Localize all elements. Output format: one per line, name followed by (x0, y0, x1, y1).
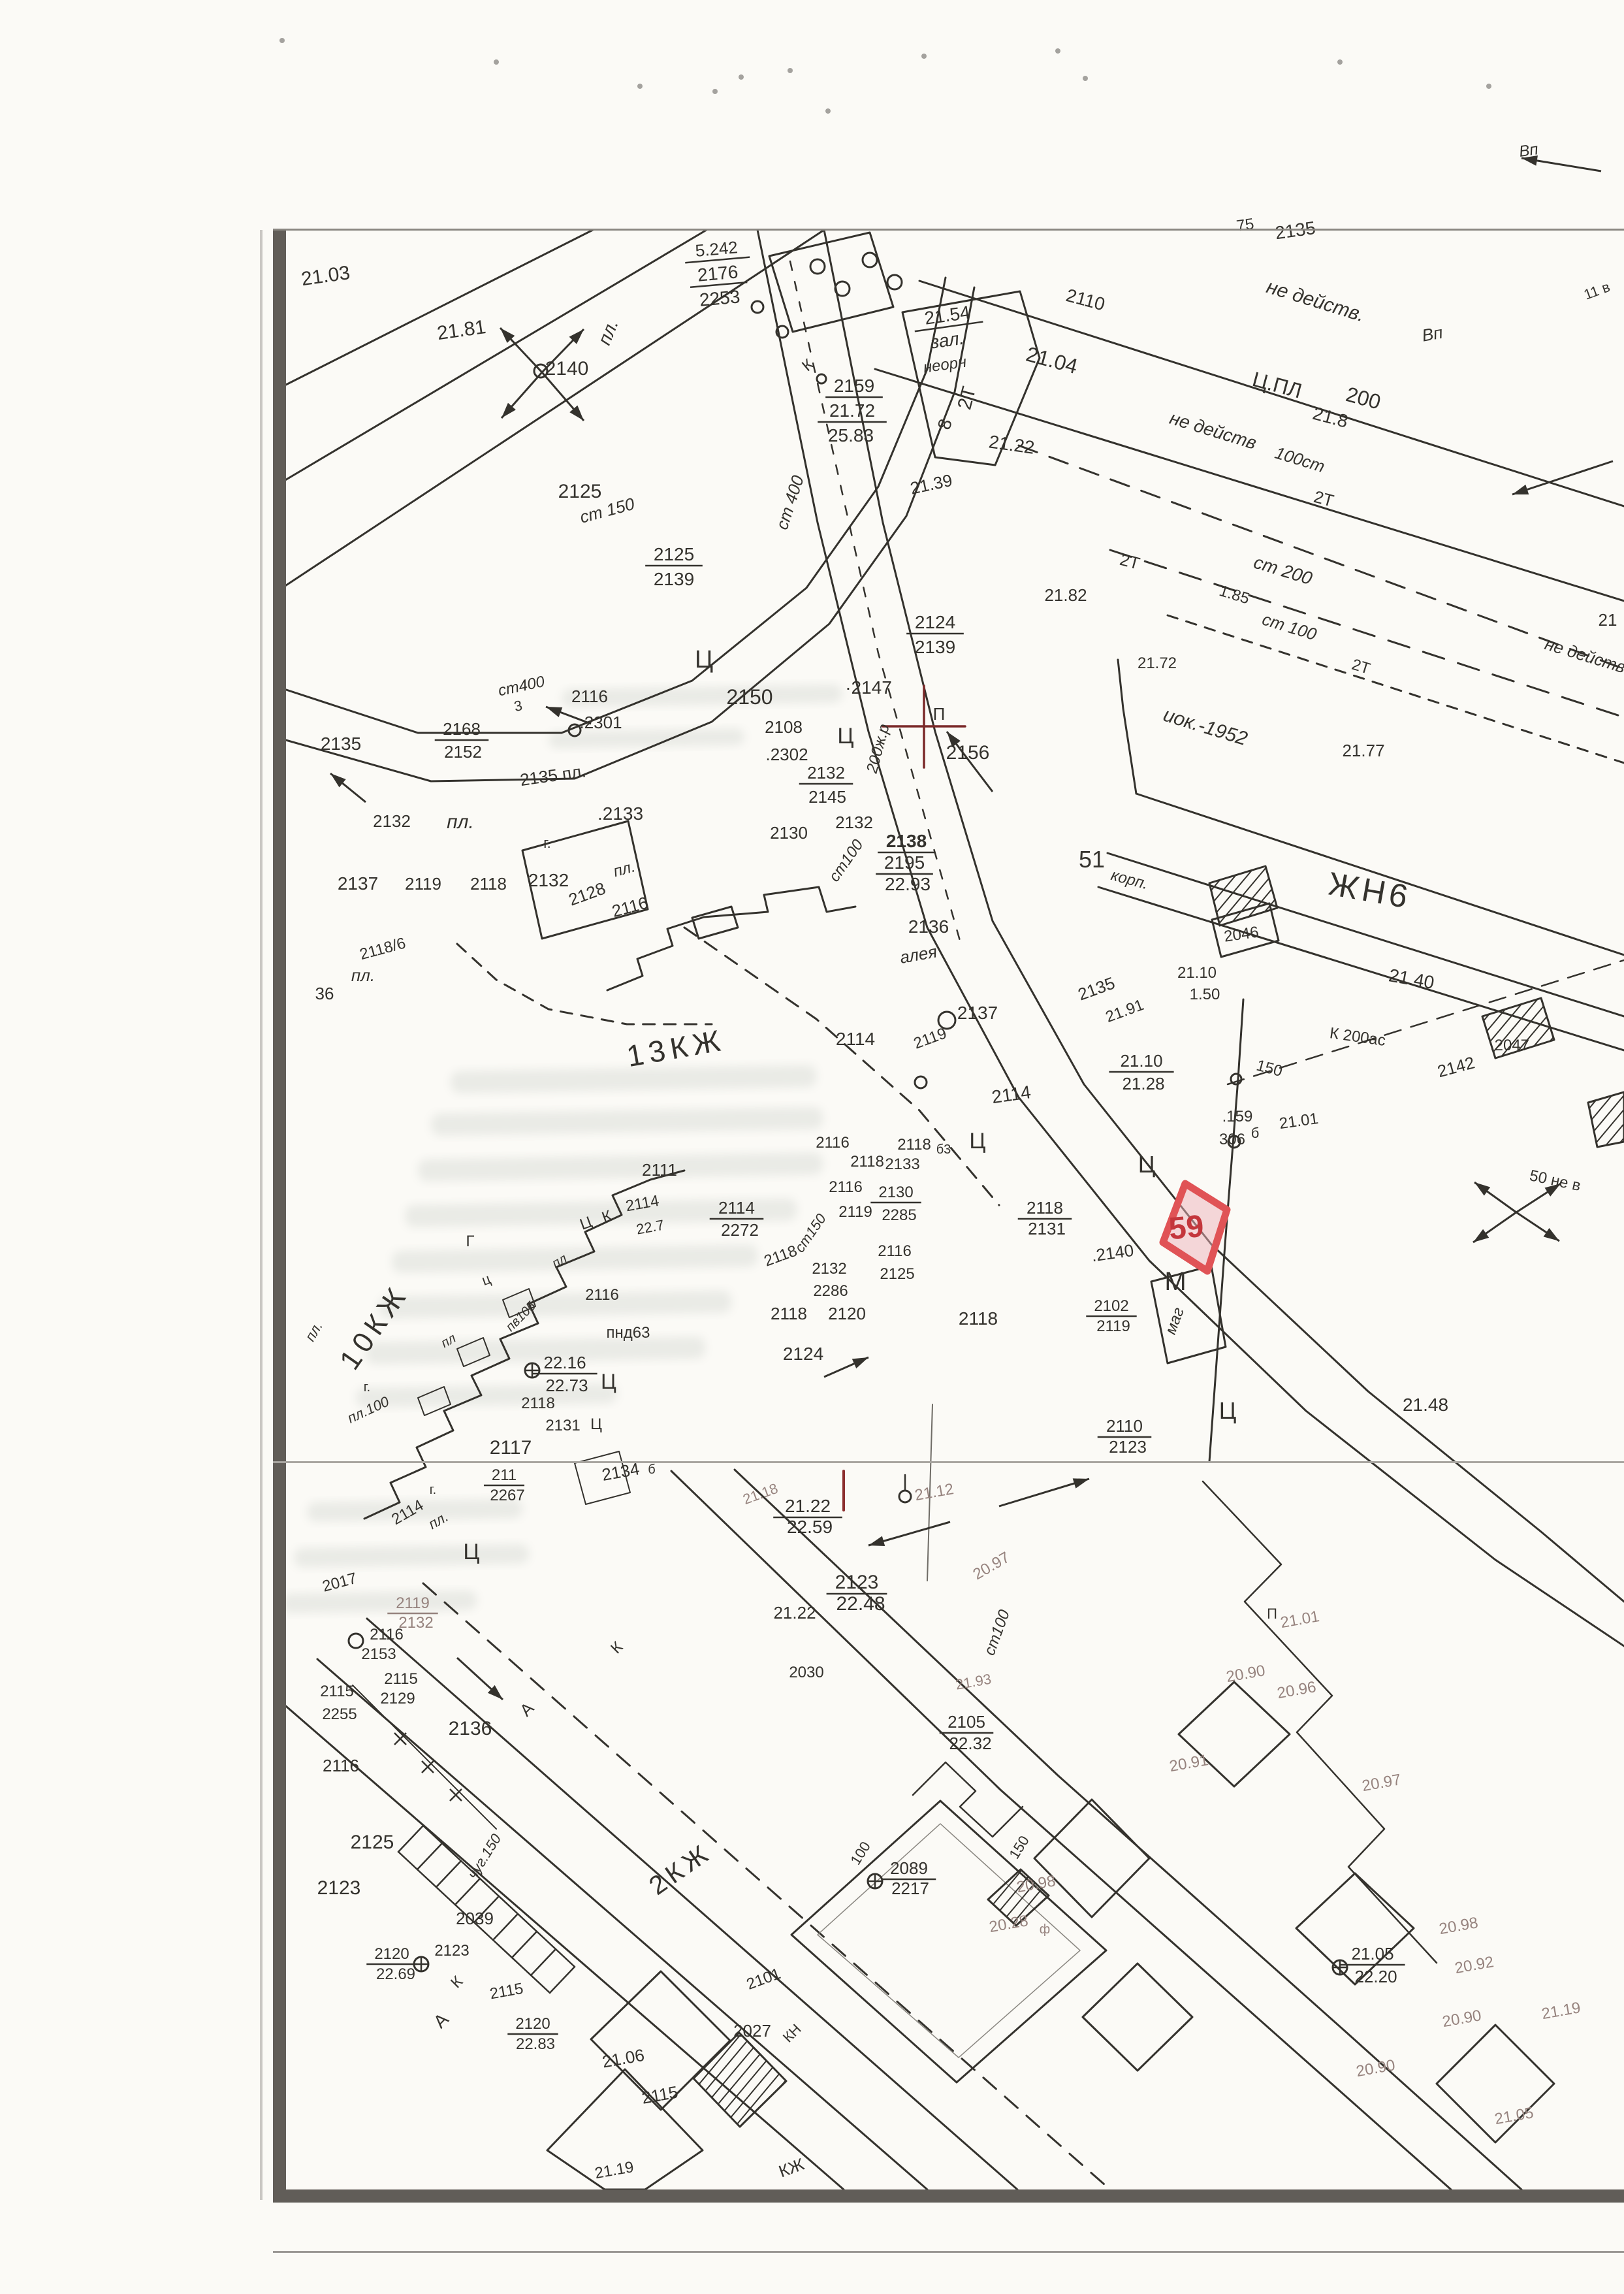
map-label: пл. (351, 965, 375, 985)
map-label: 2119 (396, 1594, 430, 1612)
map-label: 2253 (699, 286, 741, 310)
map-label-group: 2136 (449, 1718, 492, 1739)
map-label: 2123 (434, 1942, 469, 1960)
map-label-group: 2153 (361, 1645, 396, 1663)
scan-speck (788, 68, 793, 73)
map-label: 21.82 (1044, 585, 1087, 605)
map-label: 2176 (697, 261, 739, 285)
map-label-group: Ц (837, 724, 853, 749)
map-label-group: 2285 (882, 1206, 916, 1224)
map-label-group: 22.73 (545, 1376, 588, 1395)
map-label-group: 2116 (571, 687, 608, 706)
map-label-group: ф (1040, 1922, 1050, 1937)
map-label: 22.69 (376, 1965, 415, 1983)
map-label-group: 2111 (642, 1160, 677, 1180)
map-label: 21.10 (1177, 964, 1217, 982)
map-label-group: Ц (463, 1540, 479, 1564)
map-label: 2116 (585, 1286, 619, 1304)
map-label-group: 25.83 (828, 425, 874, 445)
map-label: Ц (463, 1540, 479, 1564)
map-label: б (648, 1462, 655, 1477)
map-label-group: М (1164, 1267, 1186, 1296)
map-label-group: 2159 (825, 376, 883, 397)
map-label-group: 21.10 (1177, 964, 1217, 982)
map-label: 22.16 (543, 1353, 586, 1372)
bleed-through-smudge (281, 1591, 477, 1613)
map-label: 21.48 (1403, 1395, 1448, 1415)
map-label-group: 2132 (373, 811, 411, 831)
map-label-group: 2108 (765, 717, 803, 737)
map-label-group: 51 (1079, 846, 1105, 873)
map-label-group: 2119 (838, 1203, 872, 1221)
parcel-59-label-group: 59 (1168, 1209, 1205, 1246)
map-label: 2089 (890, 1858, 928, 1878)
map-label: 2114 (836, 1029, 875, 1049)
map-label-group: 2195 (876, 852, 933, 874)
map-label-group: 2132 (528, 870, 569, 890)
map-label: 5.242 (694, 237, 738, 261)
scan-speck (494, 59, 499, 65)
map-label-group: 2115 (320, 1683, 354, 1700)
map-label-group: 2145 (808, 787, 846, 807)
map-label-group: 2120 (828, 1304, 866, 1323)
scan-speck (825, 108, 831, 114)
map-label: 22.48 (836, 1593, 885, 1615)
map-label: 2125 (654, 544, 694, 564)
scanned-map-page: 21.0321.81пл.214021255.2422176225321.54з… (0, 0, 1624, 2294)
map-label-group: 2150 (726, 685, 772, 709)
map-label-group: 2124 (906, 612, 964, 634)
map-label-group: 2132 (812, 1260, 846, 1278)
map-label-group: .159 (1222, 1108, 1253, 1125)
map-label: П (933, 704, 946, 724)
map-label-group: 2118 (959, 1308, 998, 1329)
map-label: 2125 (880, 1265, 914, 1283)
map-label: 2116 (323, 1756, 359, 1775)
map-label: ·2147 (845, 677, 892, 698)
map-label-group: 2267 (490, 1487, 524, 1504)
map-label-group: 2125 (558, 481, 602, 502)
map-label-group: 2130 (770, 823, 808, 843)
map-label-group: 2135 (321, 734, 361, 754)
map-label-group: 22.93 (885, 874, 931, 894)
map-label-group: .2301 (579, 713, 622, 732)
map-label-group: 2116 (829, 1178, 863, 1196)
scan-speck (279, 38, 285, 43)
map-label-group: Вп (1518, 140, 1540, 161)
map-label-group: .2302 (765, 745, 808, 764)
map-label-group: пл. (351, 965, 375, 985)
map-label: 2133 (885, 1155, 919, 1173)
map-label: 22.73 (545, 1376, 588, 1395)
map-label-group: П (933, 704, 946, 724)
map-frame-border-0 (260, 230, 263, 2200)
map-label-group: 22.59 (787, 1517, 833, 1537)
map-label: 2118 (771, 1304, 807, 1323)
map-label: 2120 (828, 1304, 866, 1323)
map-label-group: 21.72 (1138, 654, 1177, 672)
map-label: 2153 (361, 1645, 396, 1663)
map-label-group: 21.48 (1403, 1395, 1448, 1415)
map-label: г. (543, 835, 550, 851)
map-label: 2131 (545, 1417, 580, 1434)
map-label: 2123 (1109, 1437, 1147, 1457)
map-label: б3 (936, 1142, 951, 1157)
map-label: .2302 (765, 745, 808, 764)
map-label: 22.83 (516, 2035, 555, 2053)
map-label: 2137 (338, 873, 378, 894)
map-label: 21.77 (1342, 741, 1384, 760)
map-label: 2116 (816, 1134, 850, 1152)
map-label: .2301 (579, 713, 622, 732)
map-label-group: г. (543, 835, 550, 851)
map-label: 2030 (789, 1664, 823, 1681)
map-label: 2118 (521, 1395, 555, 1412)
map-label: 2132 (807, 763, 845, 783)
map-label: 2267 (490, 1487, 524, 1504)
map-label-group: 21 (1599, 610, 1617, 630)
map-label-group: 1.50 (1190, 986, 1220, 1003)
map-label: 2286 (813, 1282, 848, 1300)
map-label-group: 21.22 (773, 1603, 816, 1623)
map-label-group: Ц (1219, 1397, 1237, 1424)
scan-speck (1083, 76, 1088, 81)
map-label-group: 2116 (370, 1626, 404, 1643)
map-label-group: П (1267, 1606, 1277, 1622)
map-label: 75 (1235, 215, 1255, 234)
map-label-group: 2255 (322, 1705, 357, 1723)
map-label-group: Ц (969, 1129, 985, 1154)
scan-speck (1486, 84, 1491, 89)
map-label-group: 22.48 (836, 1593, 885, 1615)
map-label: 2285 (882, 1206, 916, 1224)
map-label-group: 2123 (434, 1942, 469, 1960)
map-label: 2138 (886, 831, 927, 851)
map-label-group: 2140 (545, 358, 589, 380)
map-label-group: 2131 (1028, 1219, 1066, 1238)
map-label-group: Ц (601, 1370, 616, 1393)
map-label: 2130 (770, 823, 808, 843)
map-label: 22.59 (787, 1517, 833, 1537)
map-label-group: 75 (1235, 215, 1255, 234)
map-label: 2118 (897, 1136, 931, 1154)
map-label: 22.32 (949, 1734, 991, 1753)
map-label: 2168 (443, 719, 481, 739)
bleed-through-smudge (294, 1544, 529, 1568)
map-label: 2145 (808, 787, 846, 807)
parcel-59-label: 59 (1168, 1209, 1205, 1246)
map-label: 2136 (449, 1718, 492, 1739)
scan-speck (1337, 59, 1343, 65)
map-label-group: 2116 (323, 1756, 359, 1775)
map-label-group: 2137 (957, 1003, 998, 1023)
scan-speck (921, 54, 927, 59)
map-label: 2115 (384, 1670, 418, 1688)
map-label: 2119 (1096, 1317, 1130, 1335)
map-label: 2115 (320, 1683, 354, 1700)
map-label-group: 2133 (885, 1155, 919, 1173)
map-label-group: 2125 (645, 544, 703, 566)
map-canvas: 21.0321.81пл.214021255.2422176225321.54з… (0, 0, 1624, 2294)
map-label: 2125 (558, 481, 602, 502)
map-label: 2272 (721, 1220, 759, 1240)
scan-speck (739, 74, 744, 80)
map-label: пнд63 (607, 1324, 650, 1342)
map-label: 2116 (829, 1178, 863, 1196)
map-label-group: 2132 (799, 763, 853, 784)
map-label-group: б (1251, 1125, 1260, 1141)
map-label: Ц (837, 724, 853, 749)
map-label-group: 2136 (908, 916, 949, 937)
map-label: 2116 (370, 1626, 404, 1643)
map-label: 51 (1079, 846, 1105, 873)
map-label-group: 2253 (699, 286, 741, 310)
map-label: 21 (1599, 610, 1617, 630)
map-label: 2140 (545, 358, 589, 380)
map-frame-border-3 (273, 2189, 1624, 2203)
map-label: 2117 (490, 1437, 532, 1459)
map-label: 2111 (642, 1160, 677, 1180)
map-label: 2110 (1106, 1416, 1143, 1436)
map-label: 2120 (374, 1945, 409, 1963)
map-label-group: 2168 (435, 719, 489, 740)
map-label-group: 2129 (380, 1690, 415, 1707)
map-label-group: 2132 (398, 1614, 433, 1632)
map-label: 2102 (1094, 1297, 1128, 1315)
map-label: 2195 (884, 852, 925, 873)
map-label: .2133 (597, 803, 643, 824)
map-label: ф (1040, 1922, 1050, 1937)
map-label-group: 2132 (835, 813, 873, 832)
map-label-group: г. (430, 1483, 436, 1497)
map-label: 2116 (878, 1242, 912, 1260)
map-label-group: 2027 (733, 2021, 771, 2041)
map-label-group: 21.77 (1342, 741, 1384, 760)
map-label: 2118 (1027, 1198, 1063, 1218)
map-label: 21.22 (785, 1496, 831, 1516)
map-label-group: 2131 (545, 1417, 580, 1434)
map-label-group: Г (466, 1233, 475, 1250)
map-label: 2118 (959, 1308, 998, 1329)
map-label-group: .2047 (1490, 1037, 1529, 1054)
map-label-group: 2217 (891, 1879, 929, 1898)
map-label: Ц (590, 1415, 602, 1433)
map-label: 2132 (528, 870, 569, 890)
map-label: 2139 (654, 569, 694, 589)
map-label-group: 2124 (783, 1344, 823, 1364)
map-label-group: Ц (1138, 1151, 1156, 1178)
map-label: 2124 (915, 612, 955, 632)
map-label: 2139 (915, 637, 955, 657)
map-label: г. (430, 1483, 436, 1497)
map-label: 2255 (322, 1705, 357, 1723)
map-label: Ц (695, 646, 713, 673)
map-label: 2217 (891, 1879, 929, 1898)
map-label: 2132 (373, 811, 411, 831)
map-label: Вп (1518, 140, 1540, 161)
map-label-group: 2137 (338, 873, 378, 894)
map-label: 2156 (946, 742, 990, 764)
map-label: 2108 (765, 717, 803, 737)
map-label-group: пнд63 (607, 1324, 650, 1342)
map-label: 21.22 (773, 1603, 816, 1623)
map-label-group: 2139 (915, 637, 955, 657)
map-label: 2132 (398, 1614, 433, 1632)
map-label: 21.05 (1351, 1944, 1393, 1963)
map-frame-border-5 (273, 1461, 1624, 1463)
map-label-group: 2030 (789, 1664, 823, 1681)
map-label: 22.20 (1354, 1967, 1397, 1986)
map-label: 2105 (947, 1712, 985, 1732)
map-label-group: 2125 (351, 1832, 394, 1853)
map-label-group: 2156 (946, 742, 990, 764)
map-label: 2118 (470, 874, 507, 894)
map-label-group: 2152 (444, 742, 482, 762)
map-label: 2116 (571, 687, 608, 706)
map-label-group: 2138 (878, 831, 935, 852)
map-label-group: 2123 (1109, 1437, 1147, 1457)
map-frame-border-2 (273, 229, 1624, 231)
map-label: .2047 (1490, 1037, 1529, 1054)
map-label-group: 2118 (470, 874, 507, 894)
map-label-group: б (648, 1462, 655, 1477)
map-label: 21.72 (829, 400, 875, 421)
map-label-group: Ц (590, 1415, 602, 1433)
map-label: 2125 (351, 1832, 394, 1853)
map-label-group: 306 (1219, 1131, 1245, 1148)
map-label-group: пл. (447, 811, 474, 833)
map-label-group: 22.20 (1354, 1967, 1397, 1986)
map-label-group: 2272 (721, 1220, 759, 1240)
map-label: 2159 (834, 376, 874, 396)
map-label: 2114 (718, 1198, 755, 1218)
map-label: 2027 (733, 2021, 771, 2041)
map-label: .159 (1222, 1108, 1253, 1125)
map-label: Вп (1420, 323, 1444, 346)
map-label: 2118 (850, 1153, 884, 1171)
map-label: 21.72 (1138, 654, 1177, 672)
map-label: Ц (601, 1370, 616, 1393)
map-label: б (1251, 1125, 1260, 1141)
map-label-group: 2105 (940, 1712, 994, 1733)
scan-speck (712, 89, 718, 94)
map-label-group: 2123 (317, 1877, 361, 1899)
map-label: 2136 (908, 916, 949, 937)
map-label: 2152 (444, 742, 482, 762)
map-label: П (1267, 1606, 1277, 1622)
map-label: Ц (1138, 1151, 1156, 1178)
map-label: Ц (1219, 1397, 1237, 1424)
map-frame-border-1 (273, 230, 286, 2201)
map-label: 21.28 (1122, 1074, 1164, 1093)
map-label-group: б3 (936, 1142, 951, 1157)
map-label-group: .2133 (597, 803, 643, 824)
map-label: Г (466, 1233, 475, 1250)
map-label: 2132 (835, 813, 873, 832)
map-label-group: 2119 (405, 874, 441, 894)
map-label: 21.10 (1120, 1051, 1162, 1071)
map-label-group: 2125 (880, 1265, 914, 1283)
map-frame-border-4 (273, 2251, 1624, 2253)
map-label: 2039 (456, 1909, 494, 1928)
map-label-group: 2116 (816, 1134, 850, 1152)
map-label-group: 2116 (878, 1242, 912, 1260)
map-label: 2124 (783, 1344, 823, 1364)
map-label-group: 2118 (897, 1136, 931, 1154)
map-label-group: 2115 (384, 1670, 418, 1688)
map-label: 306 (1219, 1131, 1245, 1148)
map-label-group: 2286 (813, 1282, 848, 1300)
map-label: 2123 (317, 1877, 361, 1899)
map-label-group: 2139 (654, 569, 694, 589)
map-label: М (1164, 1267, 1186, 1296)
map-label: 22.93 (885, 874, 931, 894)
map-label: пл. (447, 811, 474, 833)
map-label-group: ·2147 (845, 677, 892, 698)
scan-speck (637, 84, 643, 89)
map-label-group: 2123 (827, 1572, 887, 1594)
map-label-group: 2039 (456, 1909, 494, 1928)
map-label-group: 2116 (585, 1286, 619, 1304)
map-label-group: 21.28 (1122, 1074, 1164, 1093)
map-label: 2130 (878, 1184, 913, 1201)
map-label-group: г. (364, 1380, 370, 1395)
scan-speck (1055, 48, 1060, 54)
map-label-group: 2118 (521, 1395, 555, 1412)
map-label: Ц (969, 1129, 985, 1154)
map-label: г. (364, 1380, 370, 1395)
map-label: 2150 (726, 685, 772, 709)
map-label-group: Ц (695, 646, 713, 673)
map-label: 2135 (321, 734, 361, 754)
map-label-group: 22.83 (516, 2035, 555, 2053)
map-label-group: 2119 (1096, 1317, 1130, 1335)
map-label-group: 2117 (490, 1437, 532, 1459)
map-label-group: Вп (1420, 323, 1444, 346)
map-label-group: 2118 (850, 1153, 884, 1171)
map-label: 36 (315, 984, 334, 1003)
map-label-group: 2114 (836, 1029, 875, 1049)
map-label-group: 21.82 (1044, 585, 1087, 605)
map-label-group: 2118 (771, 1304, 807, 1323)
map-label-group: 22.69 (376, 1965, 415, 1983)
map-label: 2132 (812, 1260, 846, 1278)
map-label-group: 2089 (882, 1858, 936, 1879)
map-label-group: 22.32 (949, 1734, 991, 1753)
map-label: 1.50 (1190, 986, 1220, 1003)
map-label: 2123 (835, 1572, 879, 1593)
map-label: 211 (492, 1466, 517, 1484)
map-label: 2119 (838, 1203, 872, 1221)
map-label: 25.83 (828, 425, 874, 445)
map-label-group: 36 (315, 984, 334, 1003)
map-label: 2137 (957, 1003, 998, 1023)
map-label: 2120 (515, 2015, 550, 2033)
map-label: 2131 (1028, 1219, 1066, 1238)
map-label: 2119 (405, 874, 441, 894)
bleed-through-smudge (549, 728, 744, 749)
map-label: 2129 (380, 1690, 415, 1707)
